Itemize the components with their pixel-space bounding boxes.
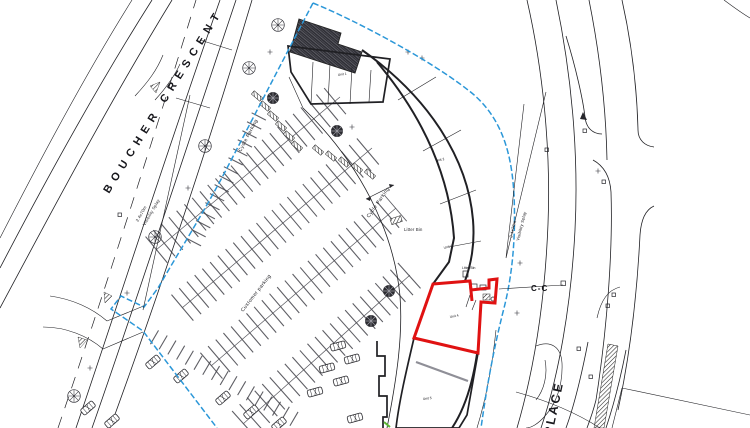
tree-icon-dark: [331, 125, 343, 137]
car-icon: [215, 390, 231, 405]
flow-arrow: [580, 112, 587, 120]
car-icon: [80, 400, 96, 415]
trees: [68, 19, 395, 403]
site-plan-canvas: C-C Litter Bin Litter Bin BOUCHER CRESCE…: [0, 0, 750, 428]
tactile-paving: [150, 82, 160, 93]
unit-label-2: Unit 2: [435, 157, 445, 163]
cycle-parking-label-1: Cycle Parking: [237, 118, 259, 153]
car-icon: [145, 354, 161, 369]
litter-bin-label: Litter Bin: [404, 227, 423, 232]
litter-bins: Litter Bin Litter Bin: [390, 216, 475, 270]
street-name-place: PLACE: [541, 380, 566, 428]
car-icon: [104, 413, 120, 428]
litter-bin-icon: [390, 216, 402, 225]
road-east-curves: [477, 0, 750, 428]
road-centerline: [58, 0, 196, 428]
parked-cars: [80, 341, 363, 428]
tree-icon: [149, 231, 162, 244]
tree-icon: [68, 390, 81, 403]
unit-label-4: Unit 4: [449, 313, 459, 318]
car-icon: [307, 387, 323, 398]
tree-icon: [199, 140, 212, 153]
unit-label-5: Unit 5: [423, 396, 432, 401]
site-plan-drawing: C-C Litter Bin Litter Bin BOUCHER CRESCE…: [0, 0, 750, 428]
car-icon: [344, 354, 360, 365]
tree-icon: [272, 19, 285, 32]
tree-icon: [243, 62, 256, 75]
car-icon: [319, 363, 335, 374]
tactile-paving: [104, 292, 112, 303]
service-yard-wall: [377, 341, 387, 428]
tree-icon-dark: [383, 285, 395, 297]
parking-bays: [154, 97, 410, 424]
terrace-front-wall: [377, 62, 454, 284]
tree-icon-dark: [267, 92, 279, 104]
cycle-rack-icon: [312, 145, 323, 155]
splay-text-right: Visibility Splay: [515, 210, 527, 241]
road-boucher-crescent: [0, 0, 252, 428]
car-icon: [330, 341, 346, 352]
cycle-rack-icon: [251, 91, 262, 101]
section-marker-label: C-C: [531, 284, 548, 293]
cycle-rack-icon: [267, 111, 278, 121]
car-icon: [271, 416, 287, 428]
cycle-rack-icon: [325, 151, 336, 161]
road-marker: [118, 213, 122, 217]
cycle-rack-icon: [275, 121, 286, 131]
visibility-splays: [143, 92, 546, 310]
street-name-boucher: BOUCHER CRESCENT: [101, 7, 225, 196]
tree-icon-dark: [365, 315, 377, 327]
cycle-racks: [251, 91, 394, 201]
unit-label-1: Unit 1: [338, 72, 347, 77]
car-icon: [347, 413, 363, 424]
litter-bin-label-2: Litter Bin: [462, 266, 475, 270]
car-icon: [333, 376, 349, 387]
road-median-hatch: [594, 344, 618, 428]
terrace-back-wall: [362, 50, 474, 281]
